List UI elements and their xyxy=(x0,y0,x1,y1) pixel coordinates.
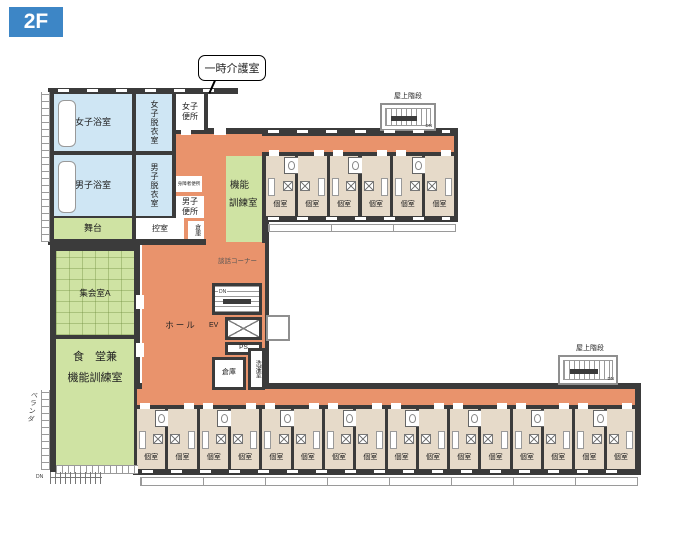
room-label: 倉庫 xyxy=(192,224,200,236)
room-label: 洗濯室 xyxy=(253,360,261,378)
door-opening xyxy=(265,403,275,409)
room-meeting-a: 集会室A xyxy=(56,251,134,335)
door-opening xyxy=(214,128,226,135)
private-room-label: 個室 xyxy=(330,199,359,209)
room-label: 倉庫 xyxy=(222,369,236,378)
room-label: 女子便所 xyxy=(181,102,199,122)
closet xyxy=(404,434,414,444)
windows-strip xyxy=(268,130,450,133)
closet xyxy=(466,434,476,444)
bed xyxy=(202,431,209,449)
toilet-icon xyxy=(471,414,478,423)
bed xyxy=(445,178,452,196)
private-room-label: 個室 xyxy=(544,452,572,462)
door-opening xyxy=(516,403,526,409)
balcony-south-wing xyxy=(140,477,638,486)
bed xyxy=(563,431,570,449)
private-room-label: 個室 xyxy=(481,452,509,462)
closet xyxy=(233,434,243,444)
private-room-label: 個室 xyxy=(294,452,322,462)
toilet-icon xyxy=(415,161,422,170)
private-room-label: 個室 xyxy=(425,199,454,209)
roof-stairs-north: DN xyxy=(380,103,436,131)
bed xyxy=(327,431,334,449)
closet xyxy=(283,181,293,191)
stair-landing xyxy=(223,299,251,304)
stairs-down-label: DN xyxy=(608,376,615,381)
door-opening xyxy=(333,150,343,156)
door-opening xyxy=(269,150,279,156)
room-label: 訓練室 xyxy=(229,198,258,210)
balcony-north-wing xyxy=(268,224,456,232)
private-room-label: 個室 xyxy=(200,452,228,462)
door-opening xyxy=(578,403,588,409)
room-label: 男子浴室 xyxy=(75,180,111,191)
bed xyxy=(390,431,397,449)
private-room-label: 個室 xyxy=(388,452,416,462)
room-label: PS xyxy=(239,344,248,352)
roof-stairs-label: 屋上階段 xyxy=(372,93,444,102)
toilet-icon xyxy=(221,414,228,423)
room-label: 舞台 xyxy=(84,223,102,234)
closet xyxy=(170,434,180,444)
private-room: 個室 xyxy=(298,156,327,216)
room-label: 機能訓練室 xyxy=(56,372,134,386)
central-stairs: DN xyxy=(212,283,262,315)
closet xyxy=(483,434,493,444)
windows-strip xyxy=(142,470,632,473)
private-room: 個室 xyxy=(481,409,509,469)
toilet-icon xyxy=(346,414,353,423)
private-room-label: 個室 xyxy=(262,452,290,462)
door-opening xyxy=(453,403,463,409)
private-room: 個室 xyxy=(419,409,447,469)
private-room-label: 個室 xyxy=(393,199,422,209)
room-label: 食 堂兼 xyxy=(56,351,134,365)
toilet-icon xyxy=(597,414,604,423)
private-room: 個室 xyxy=(607,409,635,469)
bed xyxy=(452,431,459,449)
bed xyxy=(332,178,339,196)
room-label: 女子脱衣室 xyxy=(149,100,159,145)
bathtub xyxy=(58,100,76,147)
bed xyxy=(313,431,320,449)
closet xyxy=(296,434,306,444)
bed xyxy=(395,178,402,196)
door-opening xyxy=(181,130,191,135)
stair-landing xyxy=(570,369,598,374)
closet xyxy=(341,434,351,444)
room-storage-small: 倉庫 xyxy=(188,221,204,239)
private-room-label: 個室 xyxy=(356,452,384,462)
room-label: 集会室A xyxy=(56,288,134,299)
private-room-label: 個室 xyxy=(450,452,478,462)
private-room: 個室 xyxy=(362,156,391,216)
room-label: 身障者便所 xyxy=(178,181,201,187)
room-label: 機能 xyxy=(230,180,249,192)
door-opening xyxy=(497,403,507,409)
room-dining-training: 食 堂兼 機能訓練室 xyxy=(56,339,134,466)
bed xyxy=(250,431,257,449)
closet xyxy=(358,434,368,444)
elevator-shaft-ext xyxy=(266,315,290,341)
closet xyxy=(216,434,226,444)
door-opening xyxy=(140,403,150,409)
door-opening xyxy=(622,403,632,409)
private-room-label: 個室 xyxy=(575,452,603,462)
closet xyxy=(529,434,539,444)
closet xyxy=(427,181,437,191)
door-opening xyxy=(391,403,401,409)
roof-stairs-label: 屋上階段 xyxy=(552,345,628,354)
wall-segment xyxy=(136,239,206,245)
bed xyxy=(626,431,633,449)
exterior-stairs xyxy=(50,472,102,484)
room-waiting: 控室 xyxy=(136,218,184,239)
toilet-icon xyxy=(284,414,291,423)
north-wing-rooms: 個室個室個室個室個室個室 xyxy=(266,156,454,216)
room-accessible-toilet: 身障者便所 xyxy=(176,176,202,192)
closet xyxy=(410,181,420,191)
bed xyxy=(268,178,275,196)
roof-stairs-south: DN xyxy=(558,355,618,385)
door-opening xyxy=(559,403,569,409)
door-opening xyxy=(441,150,451,156)
bed xyxy=(501,431,508,449)
closet xyxy=(609,434,619,444)
private-room-label: 個室 xyxy=(168,452,196,462)
windows-strip xyxy=(268,217,450,220)
room-label: 男子便所 xyxy=(181,197,199,217)
floor-plan: 2F 女子浴室 男子浴室 女子脱衣室 男子脱衣室 女子便所 身障者便所 男子便所… xyxy=(0,0,676,541)
room-label: 男子脱衣室 xyxy=(149,163,159,208)
floor-badge: 2F xyxy=(9,7,63,37)
closet xyxy=(546,434,556,444)
room-womens-toilet: 女子便所 xyxy=(176,94,204,130)
closet xyxy=(300,181,310,191)
bed xyxy=(139,431,146,449)
balcony-west-south xyxy=(41,390,50,470)
bed xyxy=(376,431,383,449)
hall-label: ホール xyxy=(158,320,204,331)
room-laundry: 洗濯室 xyxy=(248,348,265,390)
private-room-label: 個室 xyxy=(137,452,165,462)
private-room: 個室 xyxy=(168,409,196,469)
veranda-label: ベランダ xyxy=(25,391,38,424)
bathtub xyxy=(58,161,76,213)
room-stage: 舞台 xyxy=(54,218,132,239)
door-opening xyxy=(136,343,144,357)
stairs-down-label: DN xyxy=(426,123,433,128)
stair-landing xyxy=(391,116,417,121)
private-room-label: 個室 xyxy=(419,452,447,462)
toilet-icon xyxy=(534,414,541,423)
bed xyxy=(515,431,522,449)
room-storage-central: 倉庫 xyxy=(212,357,246,390)
door-opening xyxy=(309,403,319,409)
private-room-label: 個室 xyxy=(513,452,541,462)
door-opening xyxy=(314,150,324,156)
south-wing-rooms: 個室個室個室個室個室個室個室個室個室個室個室個室個室個室個室個室 xyxy=(137,409,635,469)
exterior-stairs-down-label: DN xyxy=(36,474,43,480)
toilet-icon xyxy=(158,414,165,423)
private-room: 個室 xyxy=(231,409,259,469)
corridor-north-wing xyxy=(256,136,454,152)
door-opening xyxy=(372,403,382,409)
chat-corner-label: 談話コーナー xyxy=(218,258,257,266)
private-room: 個室 xyxy=(356,409,384,469)
toilet-icon xyxy=(288,161,295,170)
bed xyxy=(438,431,445,449)
private-room-label: 個室 xyxy=(362,199,391,209)
toilet-icon xyxy=(409,414,416,423)
closet xyxy=(364,181,374,191)
private-room-label: 個室 xyxy=(231,452,259,462)
closet xyxy=(279,434,289,444)
room-label: 女子浴室 xyxy=(75,117,111,128)
bed xyxy=(264,431,271,449)
closet xyxy=(153,434,163,444)
door-opening xyxy=(246,403,256,409)
door-opening xyxy=(136,295,144,309)
toilet-icon xyxy=(352,161,359,170)
windows-strip xyxy=(58,89,230,92)
room-womens-dressing: 女子脱衣室 xyxy=(136,94,172,151)
private-room-label: 個室 xyxy=(266,199,295,209)
private-room: 個室 xyxy=(294,409,322,469)
callout-label: 一時介護室 xyxy=(205,60,260,76)
closet xyxy=(346,181,356,191)
door-opening xyxy=(184,403,194,409)
bed xyxy=(188,431,195,449)
elevator-label: EV xyxy=(209,322,218,331)
callout-temporary-care: 一時介護室 xyxy=(198,55,266,81)
private-room-label: 個室 xyxy=(298,199,327,209)
room-temporary-care xyxy=(208,94,238,128)
door-opening xyxy=(203,403,213,409)
private-room: 個室 xyxy=(425,156,454,216)
private-room-label: 個室 xyxy=(607,452,635,462)
private-room-label: 個室 xyxy=(325,452,353,462)
room-label: 控室 xyxy=(152,224,168,234)
room-function-training: 機能 訓練室 xyxy=(226,156,262,242)
closet xyxy=(592,434,602,444)
bed xyxy=(318,178,325,196)
bed xyxy=(381,178,388,196)
door-opening xyxy=(377,150,387,156)
elevator xyxy=(225,317,262,340)
stairs-down-label: DN xyxy=(218,289,227,295)
door-opening xyxy=(396,150,406,156)
door-opening xyxy=(328,403,338,409)
bed xyxy=(577,431,584,449)
closet xyxy=(421,434,431,444)
private-room: 個室 xyxy=(544,409,572,469)
room-mens-dressing: 男子脱衣室 xyxy=(136,155,172,216)
stair-rail xyxy=(50,477,102,478)
room-mens-toilet: 男子便所 xyxy=(176,196,204,218)
door-opening xyxy=(434,403,444,409)
balcony-west-north xyxy=(41,92,50,242)
